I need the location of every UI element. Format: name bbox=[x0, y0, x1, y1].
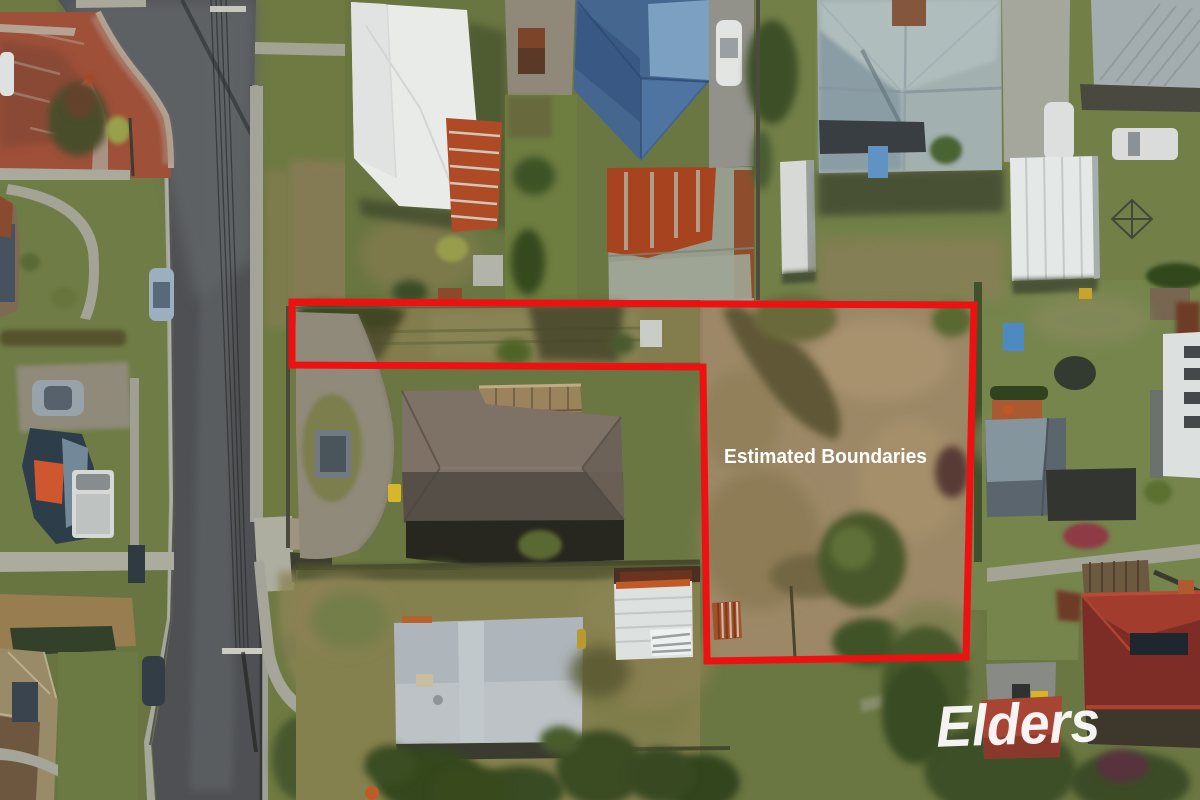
svg-text:Estimated Boundaries: Estimated Boundaries bbox=[724, 446, 927, 468]
svg-text:Elders: Elders bbox=[935, 689, 1101, 760]
